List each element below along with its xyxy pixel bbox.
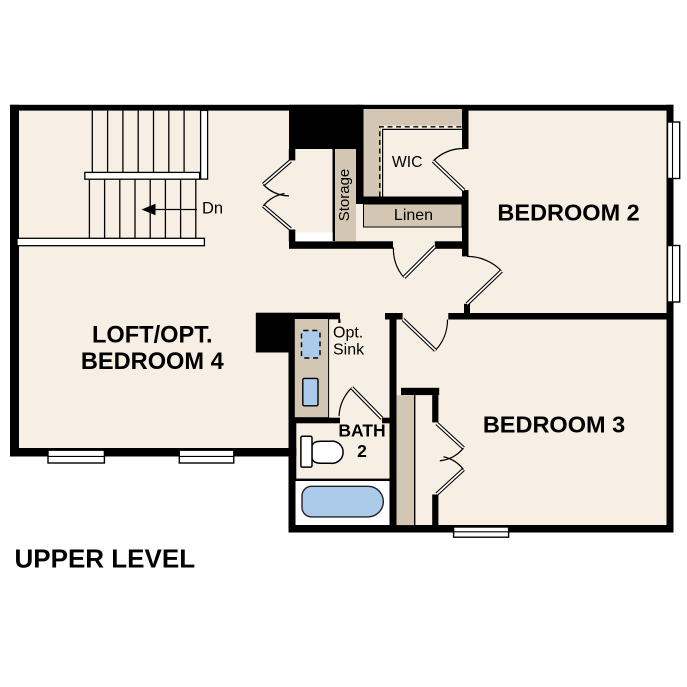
- svg-text:LOFT/OPT.: LOFT/OPT.: [92, 322, 213, 348]
- svg-text:Opt.: Opt.: [333, 325, 363, 342]
- svg-text:BATH: BATH: [338, 421, 385, 441]
- svg-text:Dn: Dn: [202, 199, 223, 217]
- svg-text:Linen: Linen: [394, 207, 433, 224]
- svg-text:2: 2: [357, 441, 367, 461]
- svg-text:BEDROOM 4: BEDROOM 4: [81, 349, 224, 375]
- svg-text:Storage: Storage: [336, 169, 353, 222]
- svg-text:WIC: WIC: [392, 154, 423, 171]
- svg-text:Sink: Sink: [333, 342, 365, 359]
- svg-text:BEDROOM 3: BEDROOM 3: [483, 412, 625, 438]
- svg-text:BEDROOM 2: BEDROOM 2: [497, 200, 639, 226]
- svg-text:UPPER LEVEL: UPPER LEVEL: [15, 544, 196, 574]
